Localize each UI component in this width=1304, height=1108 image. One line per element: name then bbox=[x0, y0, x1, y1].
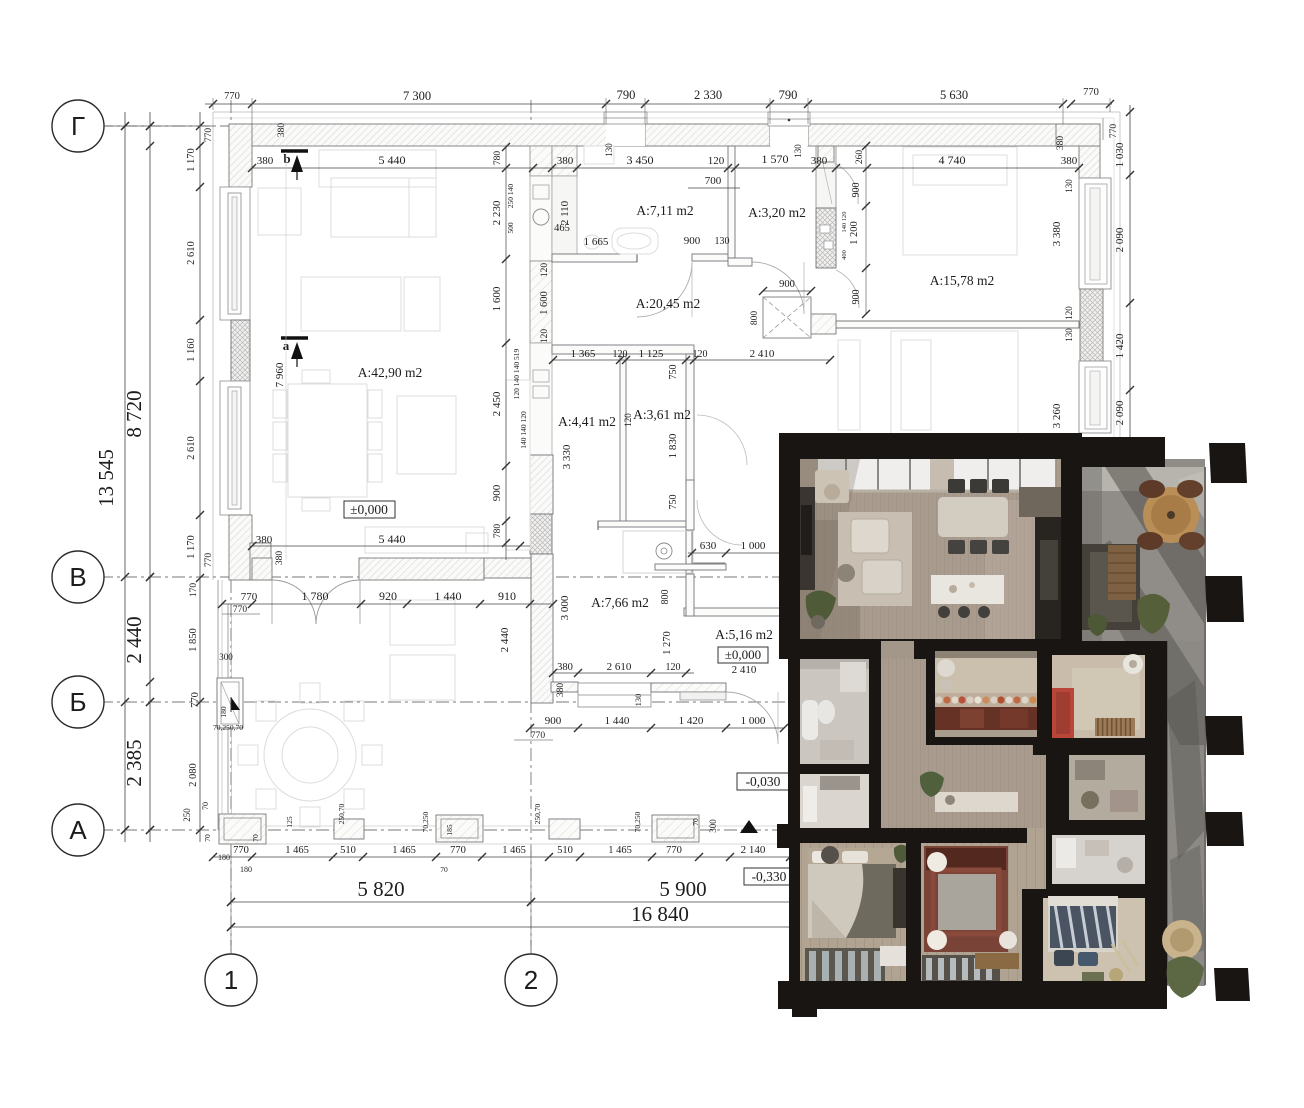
svg-text:70: 70 bbox=[201, 802, 210, 810]
svg-text:120: 120 bbox=[708, 155, 725, 167]
svg-text:770: 770 bbox=[450, 845, 466, 856]
svg-text:380: 380 bbox=[275, 551, 285, 566]
svg-text:750: 750 bbox=[668, 495, 679, 510]
svg-text:180: 180 bbox=[240, 865, 252, 874]
svg-text:120 140 140 519: 120 140 140 519 bbox=[512, 348, 521, 399]
svg-text:750: 750 bbox=[668, 365, 679, 380]
svg-text:790: 790 bbox=[617, 88, 636, 102]
svg-text:120: 120 bbox=[693, 349, 708, 360]
svg-text:300: 300 bbox=[219, 652, 233, 662]
svg-text:120: 120 bbox=[540, 329, 550, 344]
svg-text:1 780: 1 780 bbox=[302, 589, 329, 603]
svg-text:2 330: 2 330 bbox=[694, 88, 722, 102]
svg-text:180: 180 bbox=[218, 853, 230, 862]
svg-text:5 440: 5 440 bbox=[379, 153, 406, 167]
svg-text:1 420: 1 420 bbox=[679, 715, 704, 727]
svg-text:2: 2 bbox=[524, 965, 538, 995]
svg-text:2 080: 2 080 bbox=[188, 763, 199, 787]
svg-text:380: 380 bbox=[257, 155, 274, 167]
svg-text:780: 780 bbox=[493, 151, 503, 166]
svg-text:A:5,16 m2: A:5,16 m2 bbox=[715, 627, 773, 642]
svg-text:Б: Б bbox=[69, 687, 86, 717]
svg-text:3 450: 3 450 bbox=[627, 153, 654, 167]
svg-text:380: 380 bbox=[256, 534, 273, 546]
svg-text:1 665: 1 665 bbox=[584, 236, 609, 248]
svg-text:380: 380 bbox=[557, 155, 574, 167]
svg-text:A:3,20 m2: A:3,20 m2 bbox=[748, 205, 806, 220]
svg-text:1 440: 1 440 bbox=[605, 715, 630, 727]
svg-text:1 465: 1 465 bbox=[502, 845, 526, 856]
svg-text:A:20,45 m2: A:20,45 m2 bbox=[636, 296, 701, 311]
svg-text:1 600: 1 600 bbox=[491, 286, 503, 311]
svg-text:770: 770 bbox=[204, 553, 214, 568]
svg-text:1 830: 1 830 bbox=[667, 433, 679, 458]
svg-text:A:7,11 m2: A:7,11 m2 bbox=[636, 203, 693, 218]
svg-text:630: 630 bbox=[700, 540, 717, 552]
svg-text:70: 70 bbox=[203, 834, 212, 842]
svg-text:510: 510 bbox=[557, 845, 573, 856]
svg-text:-0,330: -0,330 bbox=[752, 869, 787, 884]
svg-text:130: 130 bbox=[1064, 328, 1074, 342]
svg-text:b: b bbox=[283, 151, 290, 166]
svg-text:2 410: 2 410 bbox=[732, 664, 757, 676]
svg-text:180: 180 bbox=[219, 706, 228, 718]
svg-text:1 200: 1 200 bbox=[849, 221, 860, 245]
svg-text:8 720: 8 720 bbox=[122, 390, 146, 437]
svg-text:770: 770 bbox=[233, 845, 249, 856]
svg-text:3 000: 3 000 bbox=[559, 595, 571, 620]
svg-text:120: 120 bbox=[540, 263, 550, 278]
svg-text:А: А bbox=[69, 815, 87, 845]
svg-text:900: 900 bbox=[684, 235, 701, 247]
svg-text:1 850: 1 850 bbox=[188, 628, 199, 652]
svg-text:900: 900 bbox=[491, 484, 503, 501]
svg-text:120: 120 bbox=[613, 349, 628, 360]
svg-text:2 385: 2 385 bbox=[122, 739, 146, 786]
svg-text:2 410: 2 410 bbox=[750, 348, 775, 360]
svg-text:1 600: 1 600 bbox=[539, 291, 550, 315]
svg-text:770: 770 bbox=[190, 692, 201, 708]
svg-text:380: 380 bbox=[811, 155, 828, 167]
svg-text:120: 120 bbox=[1064, 306, 1074, 320]
svg-text:770: 770 bbox=[224, 91, 240, 102]
svg-text:1: 1 bbox=[224, 965, 238, 995]
svg-text:2 610: 2 610 bbox=[186, 241, 197, 265]
svg-text:900: 900 bbox=[851, 183, 862, 198]
svg-text:5 440: 5 440 bbox=[379, 532, 406, 546]
svg-text:900: 900 bbox=[779, 279, 795, 290]
svg-text:1 420: 1 420 bbox=[1114, 333, 1126, 358]
svg-text:В: В bbox=[69, 562, 86, 592]
svg-text:130: 130 bbox=[793, 144, 803, 158]
svg-text:7 300: 7 300 bbox=[403, 89, 431, 103]
svg-text:770: 770 bbox=[666, 845, 682, 856]
svg-text:Г: Г bbox=[71, 111, 85, 141]
svg-text:140 140 120: 140 140 120 bbox=[519, 411, 528, 449]
svg-text:1 570: 1 570 bbox=[762, 152, 789, 166]
svg-text:120: 120 bbox=[666, 662, 681, 673]
svg-text:2 090: 2 090 bbox=[1114, 400, 1126, 425]
svg-text:700: 700 bbox=[705, 175, 722, 187]
svg-text:70,250: 70,250 bbox=[633, 811, 642, 832]
svg-text:185: 185 bbox=[445, 824, 454, 836]
svg-text:1 465: 1 465 bbox=[392, 845, 416, 856]
svg-text:380: 380 bbox=[1061, 155, 1078, 167]
svg-text:770: 770 bbox=[531, 731, 546, 741]
svg-text:13 545: 13 545 bbox=[94, 449, 118, 507]
svg-text:1 170: 1 170 bbox=[186, 535, 197, 559]
svg-text:260: 260 bbox=[855, 150, 865, 165]
svg-text:3 330: 3 330 bbox=[561, 444, 573, 469]
svg-text:250,70: 250,70 bbox=[337, 803, 346, 824]
svg-text:250 140: 250 140 bbox=[506, 184, 515, 209]
svg-text:2 450: 2 450 bbox=[491, 391, 503, 416]
svg-text:770: 770 bbox=[1109, 124, 1119, 139]
svg-text:465: 465 bbox=[554, 223, 570, 234]
svg-text:790: 790 bbox=[779, 88, 798, 102]
svg-text:1 440: 1 440 bbox=[435, 589, 462, 603]
svg-text:170: 170 bbox=[189, 583, 199, 598]
svg-text:5 630: 5 630 bbox=[940, 88, 968, 102]
svg-text:380: 380 bbox=[277, 123, 287, 138]
svg-text:1 160: 1 160 bbox=[186, 338, 197, 362]
svg-text:A:3,61 m2: A:3,61 m2 bbox=[633, 407, 691, 422]
svg-text:400: 400 bbox=[841, 250, 848, 260]
svg-text:1 465: 1 465 bbox=[285, 845, 309, 856]
svg-text:920: 920 bbox=[379, 589, 397, 603]
svg-text:16 840: 16 840 bbox=[631, 902, 689, 926]
svg-text:5 820: 5 820 bbox=[357, 877, 404, 901]
svg-text:500: 500 bbox=[506, 222, 515, 234]
svg-text:A:7,66 m2: A:7,66 m2 bbox=[591, 595, 649, 610]
svg-text:380: 380 bbox=[1056, 136, 1066, 151]
svg-text:510: 510 bbox=[340, 845, 356, 856]
svg-text:380: 380 bbox=[557, 662, 573, 673]
svg-text:800: 800 bbox=[660, 590, 671, 605]
svg-text:380: 380 bbox=[556, 683, 566, 698]
svg-text:130: 130 bbox=[715, 236, 730, 247]
svg-text:250: 250 bbox=[182, 808, 192, 822]
svg-text:300: 300 bbox=[708, 819, 718, 833]
svg-text:±0,000: ±0,000 bbox=[350, 502, 388, 517]
svg-text:1 170: 1 170 bbox=[186, 148, 197, 172]
svg-text:A:4,41 m2: A:4,41 m2 bbox=[558, 414, 616, 429]
svg-text:70: 70 bbox=[691, 818, 700, 826]
svg-text:1 270: 1 270 bbox=[662, 631, 673, 655]
svg-text:770: 770 bbox=[1083, 87, 1099, 98]
svg-text:2 090: 2 090 bbox=[1114, 227, 1126, 252]
svg-text:900: 900 bbox=[851, 290, 862, 305]
svg-text:770: 770 bbox=[241, 591, 258, 603]
svg-text:125: 125 bbox=[285, 816, 294, 828]
svg-text:A:15,78 m2: A:15,78 m2 bbox=[930, 273, 995, 288]
svg-text:7 960: 7 960 bbox=[274, 362, 286, 387]
svg-text:1 125: 1 125 bbox=[639, 348, 664, 360]
svg-text:770: 770 bbox=[233, 605, 248, 615]
svg-text:2 440: 2 440 bbox=[122, 616, 146, 663]
svg-text:780: 780 bbox=[493, 524, 503, 539]
svg-text:900: 900 bbox=[545, 715, 562, 727]
svg-text:70,250,70: 70,250,70 bbox=[213, 723, 243, 732]
svg-text:140 120: 140 120 bbox=[841, 211, 848, 232]
svg-text:70,250: 70,250 bbox=[421, 811, 430, 832]
svg-text:2 610: 2 610 bbox=[186, 436, 197, 460]
svg-text:130: 130 bbox=[604, 143, 614, 157]
svg-text:1 000: 1 000 bbox=[741, 540, 766, 552]
svg-text:A:42,90 m2: A:42,90 m2 bbox=[358, 365, 423, 380]
svg-text:70: 70 bbox=[251, 834, 260, 842]
svg-text:-0,030: -0,030 bbox=[746, 774, 781, 789]
svg-text:1 030: 1 030 bbox=[1114, 142, 1126, 167]
svg-text:130: 130 bbox=[1064, 179, 1074, 193]
svg-text:130: 130 bbox=[633, 694, 643, 707]
svg-text:120: 120 bbox=[623, 413, 633, 427]
svg-text:910: 910 bbox=[498, 589, 516, 603]
svg-text:5 900: 5 900 bbox=[659, 877, 706, 901]
svg-text:4 740: 4 740 bbox=[939, 153, 966, 167]
svg-text:1 365: 1 365 bbox=[571, 348, 596, 360]
svg-text:800: 800 bbox=[750, 311, 760, 326]
svg-text:2 440: 2 440 bbox=[499, 627, 511, 652]
svg-text:770: 770 bbox=[204, 128, 214, 143]
svg-text:250,70: 250,70 bbox=[533, 803, 542, 824]
svg-text:3 380: 3 380 bbox=[1051, 221, 1063, 246]
svg-text:2 230: 2 230 bbox=[491, 200, 503, 225]
svg-text:1 000: 1 000 bbox=[741, 715, 766, 727]
svg-text:2 140: 2 140 bbox=[741, 844, 766, 856]
svg-text:2 610: 2 610 bbox=[607, 661, 632, 673]
svg-text:70: 70 bbox=[440, 865, 448, 874]
svg-text:3 260: 3 260 bbox=[1051, 403, 1063, 428]
svg-text:2 110: 2 110 bbox=[559, 200, 571, 225]
svg-text:1 465: 1 465 bbox=[608, 845, 632, 856]
svg-text:±0,000: ±0,000 bbox=[725, 647, 761, 662]
